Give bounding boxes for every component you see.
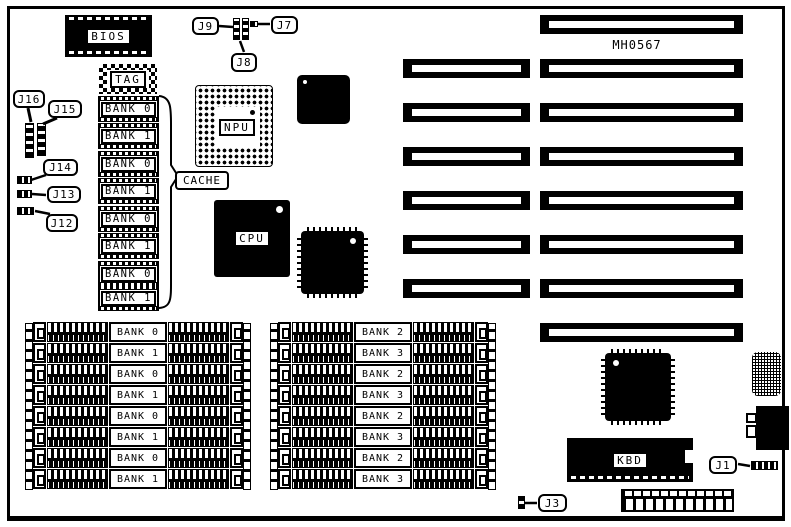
simm-bank-label: BANK 2: [354, 322, 412, 342]
jumper-label-j14: J14: [43, 159, 78, 176]
power-connector-cells: [623, 498, 732, 510]
jumper-block-j8: [242, 18, 249, 40]
cache-chip-label: BANK 0: [101, 212, 156, 227]
expansion-slot: [540, 279, 743, 298]
simm-clip: [33, 343, 46, 363]
simm-contacts: [168, 448, 229, 468]
simm-bank-label: BANK 1: [109, 427, 167, 447]
cache-sram-chip: BANK 1: [98, 285, 159, 311]
expansion-slot-ext: [403, 279, 530, 298]
j1-text: J1: [715, 459, 730, 472]
simm-clip: [230, 469, 243, 489]
simm-bank-label: BANK 0: [109, 364, 167, 384]
simm-contacts: [413, 343, 474, 363]
expansion-slot-ext: [403, 59, 530, 78]
simm-clip: [230, 406, 243, 426]
simm-clip: [475, 406, 488, 426]
simm-bank-label: BANK 1: [109, 469, 167, 489]
pin1-dot: [276, 206, 283, 213]
simm-clip: [230, 385, 243, 405]
pin1-dot: [350, 238, 356, 244]
simm-contacts: [292, 364, 353, 384]
cache-sram-chip: BANK 0: [98, 261, 159, 287]
tag-chip: TAG: [99, 64, 157, 94]
simm-socket: BANK 0: [33, 322, 243, 342]
simm-contacts: [413, 322, 474, 342]
expansion-slot-ext: [403, 147, 530, 166]
cache-chip-label: BANK 0: [101, 267, 156, 282]
cache-sram-chip: BANK 1: [98, 123, 159, 149]
power-connector: [621, 489, 734, 512]
simm-clip: [475, 448, 488, 468]
qfp-body: [301, 231, 364, 294]
simm-clip: [230, 364, 243, 384]
simm-contacts: [413, 469, 474, 489]
simm-clip: [33, 406, 46, 426]
cache-chip-label: BANK 0: [101, 157, 156, 172]
simm-socket: BANK 3: [278, 427, 488, 447]
pin1-dot: [613, 360, 619, 366]
jumper-label-j1: J1: [709, 456, 737, 474]
simm-contacts: [47, 469, 108, 489]
j16-text: J16: [18, 93, 41, 106]
simm-bank-label: BANK 3: [354, 427, 412, 447]
j15-text: J15: [54, 103, 77, 116]
simm-rail: [243, 323, 251, 490]
expansion-slot: [540, 59, 743, 78]
simm-contacts: [292, 406, 353, 426]
simm-clip: [230, 427, 243, 447]
cache-sram-chip: BANK 1: [98, 178, 159, 204]
simm-socket: BANK 3: [278, 385, 488, 405]
cpu-chip: CPU: [214, 200, 290, 277]
simm-clip: [33, 448, 46, 468]
simm-clip: [278, 469, 291, 489]
simm-contacts: [168, 427, 229, 447]
simm-clip: [475, 322, 488, 342]
simm-bank-label: BANK 3: [354, 469, 412, 489]
jumper-label-j9: J9: [192, 17, 219, 35]
simm-contacts: [168, 364, 229, 384]
simm-socket: BANK 2: [278, 406, 488, 426]
jumper-block-j14: [17, 176, 32, 184]
jumper-label-j8: J8: [231, 53, 257, 72]
expansion-slot: [540, 323, 743, 342]
simm-contacts: [47, 322, 108, 342]
simm-contacts: [168, 406, 229, 426]
simm-clip: [475, 364, 488, 384]
simm-clip: [230, 448, 243, 468]
jumper-block-j3: [518, 496, 525, 509]
j12-text: J12: [51, 217, 74, 230]
simm-bank-label: BANK 1: [109, 343, 167, 363]
kbd-label: KBD: [612, 452, 648, 469]
simm-contacts: [292, 343, 353, 363]
pin1-dot: [303, 80, 307, 84]
jumper-label-j7: J7: [271, 16, 298, 34]
kbd-chip: KBD: [567, 438, 693, 482]
simm-contacts: [47, 427, 108, 447]
qfp-pins-bottom: [611, 421, 665, 425]
simm-contacts: [292, 427, 353, 447]
cache-sram-chip: BANK 0: [98, 151, 159, 177]
simm-socket: BANK 2: [278, 448, 488, 468]
expansion-slot-ext: [403, 103, 530, 122]
simm-clip: [278, 343, 291, 363]
simm-bank-label: BANK 0: [109, 406, 167, 426]
motherboard-diagram: MH0567 BIOS J9 J7 J8 TAG BANK 0 BANK 1 B…: [0, 0, 791, 527]
npu-label: NPU: [219, 119, 255, 136]
simm-socket: BANK 1: [33, 469, 243, 489]
cache-text: CACHE: [183, 174, 221, 187]
simm-bank-label: BANK 0: [109, 448, 167, 468]
jumper-block-j1: [751, 461, 778, 470]
keyboard-din-connector: [756, 406, 789, 450]
jumper-block-j12: [17, 207, 34, 215]
simm-clip: [278, 385, 291, 405]
simm-contacts: [168, 343, 229, 363]
cache-sram-chip: BANK 1: [98, 233, 159, 259]
jumper-label-j3: J3: [538, 494, 567, 512]
simm-clip: [278, 322, 291, 342]
simm-rail: [25, 323, 33, 490]
tag-label: TAG: [110, 71, 146, 88]
simm-contacts: [47, 343, 108, 363]
qfp-body: [605, 353, 671, 421]
simm-socket: BANK 1: [33, 385, 243, 405]
cache-chip-label: BANK 0: [101, 102, 156, 117]
power-connector-pins: [623, 491, 732, 498]
jumper-block-j16: [25, 123, 34, 158]
simm-bank-label: BANK 3: [354, 385, 412, 405]
simm-contacts: [292, 469, 353, 489]
qfp-chip: [301, 231, 364, 294]
simm-contacts: [413, 427, 474, 447]
expansion-slot: [540, 103, 743, 122]
expansion-slot: [540, 147, 743, 166]
simm-clip: [475, 427, 488, 447]
cache-chip-label: BANK 1: [101, 239, 156, 254]
simm-clip: [475, 469, 488, 489]
pin1-marker: [250, 110, 255, 115]
kbd-notch: [685, 450, 693, 463]
part-number: MH0567: [597, 38, 677, 52]
expansion-slot-ext: [403, 235, 530, 254]
simm-socket: BANK 3: [278, 469, 488, 489]
simm-group-right: BANK 2 BANK 3 BANK 2 BANK 3 BANK 2 BANK …: [270, 322, 496, 491]
cpu-label: CPU: [234, 230, 270, 247]
asic-chip: [297, 75, 350, 124]
j7-text: J7: [277, 19, 292, 32]
expansion-slot: [540, 15, 743, 34]
simm-rail: [270, 323, 278, 490]
simm-socket: BANK 0: [33, 364, 243, 384]
jumper-block-j7: [250, 21, 258, 27]
simm-bank-label: BANK 2: [354, 448, 412, 468]
simm-contacts: [413, 448, 474, 468]
j8-text: J8: [236, 56, 251, 69]
simm-bank-label: BANK 2: [354, 364, 412, 384]
jumper-block-j15: [37, 123, 46, 156]
simm-bank-label: BANK 3: [354, 343, 412, 363]
connector-pin: [746, 425, 757, 438]
simm-bank-label: BANK 0: [109, 322, 167, 342]
jumper-label-j16: J16: [13, 90, 45, 108]
simm-contacts: [47, 448, 108, 468]
j3-text: J3: [545, 497, 560, 510]
simm-contacts: [413, 364, 474, 384]
simm-socket: BANK 1: [33, 343, 243, 363]
simm-socket: BANK 0: [33, 448, 243, 468]
qfp-pins-bottom: [307, 294, 358, 298]
jumper-label-j12: J12: [46, 214, 78, 232]
jumper-block-j9: [233, 18, 240, 40]
expansion-slot: [540, 235, 743, 254]
cache-chip-label: BANK 1: [101, 184, 156, 199]
cache-label: CACHE: [175, 171, 229, 190]
expansion-slot: [540, 191, 743, 210]
simm-socket: BANK 2: [278, 322, 488, 342]
simm-contacts: [47, 385, 108, 405]
simm-bank-label: BANK 1: [109, 385, 167, 405]
j9-text: J9: [198, 20, 213, 33]
simm-socket: BANK 0: [33, 406, 243, 426]
simm-contacts: [292, 322, 353, 342]
simm-clip: [33, 427, 46, 447]
simm-group-left: BANK 0 BANK 1 BANK 0 BANK 1 BANK 0 BANK …: [25, 322, 251, 491]
bios-chip: BIOS: [65, 15, 152, 57]
simm-contacts: [168, 322, 229, 342]
cache-sram-chip: BANK 0: [98, 206, 159, 232]
jumper-label-j13: J13: [47, 186, 81, 203]
cache-chip-label: BANK 1: [101, 129, 156, 144]
simm-clip: [475, 385, 488, 405]
simm-clip: [278, 427, 291, 447]
simm-clip: [33, 322, 46, 342]
npu-socket-center: NPU: [216, 107, 260, 147]
voltage-regulator: [752, 352, 781, 396]
simm-contacts: [292, 385, 353, 405]
simm-clip: [33, 364, 46, 384]
simm-clip: [230, 343, 243, 363]
simm-contacts: [292, 448, 353, 468]
cache-sram-chip: BANK 0: [98, 96, 159, 122]
qfp-pins-right: [364, 237, 368, 288]
simm-socket: BANK 3: [278, 343, 488, 363]
simm-contacts: [413, 406, 474, 426]
jumper-block-j13: [17, 190, 32, 198]
simm-socket: BANK 2: [278, 364, 488, 384]
npu-socket: NPU: [195, 85, 273, 167]
j13-text: J13: [53, 188, 76, 201]
expansion-slot-ext: [403, 191, 530, 210]
simm-clip: [230, 322, 243, 342]
simm-clip: [475, 343, 488, 363]
connector-pin: [746, 413, 757, 423]
j14-text: J14: [49, 161, 72, 174]
simm-rail: [488, 323, 496, 490]
simm-socket: BANK 1: [33, 427, 243, 447]
simm-clip: [278, 364, 291, 384]
qfp-pins-right: [671, 359, 675, 415]
cache-chip-label: BANK 1: [101, 291, 156, 306]
simm-clip: [278, 406, 291, 426]
simm-contacts: [413, 385, 474, 405]
simm-clip: [33, 469, 46, 489]
simm-clip: [278, 448, 291, 468]
jumper-label-j15: J15: [48, 100, 82, 118]
bios-label: BIOS: [86, 28, 131, 45]
simm-clip: [33, 385, 46, 405]
simm-contacts: [168, 469, 229, 489]
simm-contacts: [47, 364, 108, 384]
simm-contacts: [47, 406, 108, 426]
simm-bank-label: BANK 2: [354, 406, 412, 426]
qfp-chip-io: [605, 353, 671, 421]
simm-contacts: [168, 385, 229, 405]
